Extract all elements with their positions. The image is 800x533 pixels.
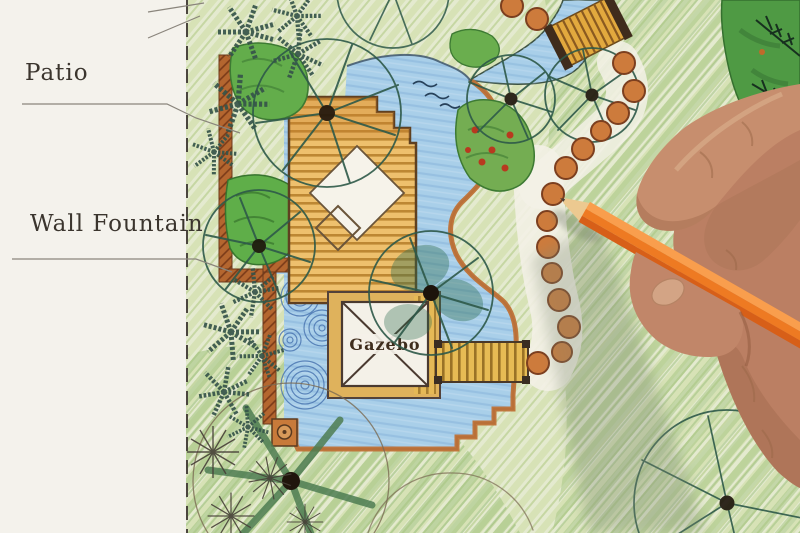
boardwalk (434, 340, 530, 384)
patio-label: Patio (25, 60, 89, 86)
wall-fountain-label: Wall Fountain (30, 211, 204, 237)
flower-pot (272, 419, 297, 446)
photo-of-landscape-plan: Gazebo (0, 0, 800, 533)
